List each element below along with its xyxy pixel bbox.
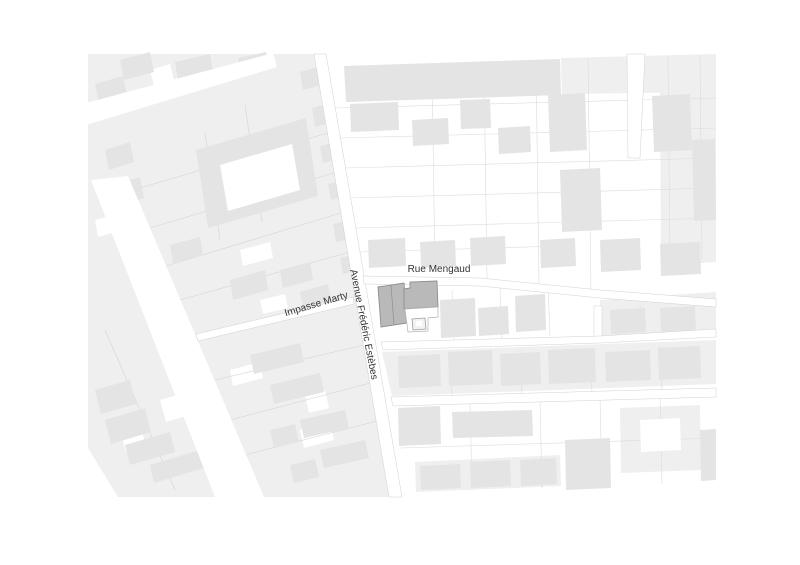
building [344,59,561,102]
parcel-line [548,286,550,336]
building [692,139,716,221]
building [565,438,611,490]
building [470,236,506,266]
site-plan-map: Rue Mengaud Avenue Frédéric Estèbes Impa… [0,0,800,565]
building [652,94,692,152]
courtyard [640,418,681,452]
building [350,102,399,132]
building [452,410,533,438]
site-building-north [404,281,438,309]
building [515,294,546,332]
building [412,118,449,146]
building [560,168,602,232]
building [420,464,461,490]
building [498,126,531,154]
building [448,350,493,386]
label-rue-mengaud: Rue Mengaud [408,264,471,275]
building [520,458,557,486]
building [470,460,511,488]
parcel-line [345,158,716,168]
building [548,93,587,152]
building [478,306,509,336]
building [658,346,701,380]
building [460,99,491,129]
building [398,354,441,388]
building [605,350,651,382]
building [660,306,696,332]
building [548,348,596,384]
building [700,429,716,481]
street-connector [594,306,602,340]
site-buildings [378,281,438,332]
building [540,238,576,268]
building [398,406,441,446]
building [368,238,406,268]
site-shed-interior [416,321,422,326]
building [600,238,641,272]
street-north-lane [627,54,645,158]
building [610,308,646,334]
building [500,352,541,386]
building [440,298,476,338]
map-canvas: Rue Mengaud Avenue Frédéric Estèbes Impa… [0,0,800,565]
building [660,242,701,276]
